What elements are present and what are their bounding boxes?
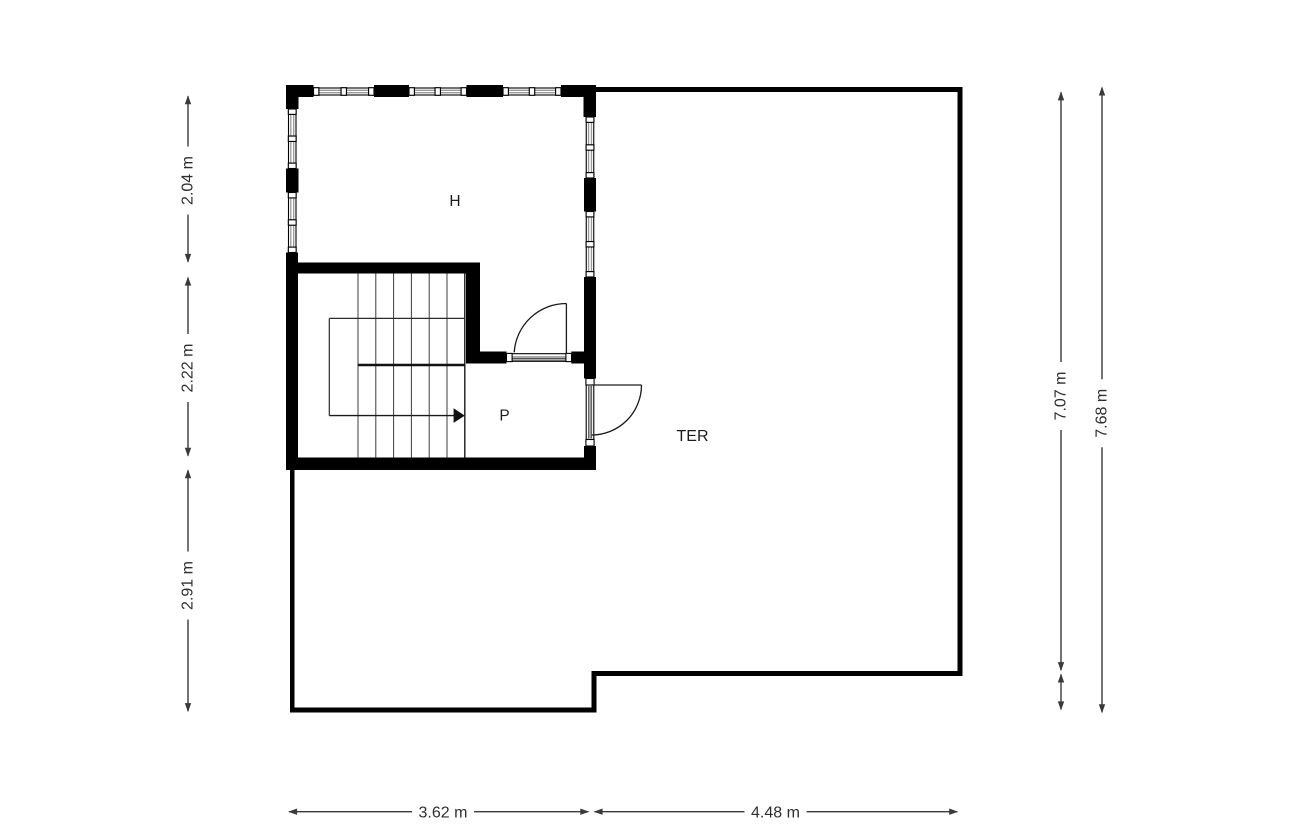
svg-text:2.91 m: 2.91 m [180, 561, 197, 610]
svg-text:7.68 m: 7.68 m [1094, 389, 1111, 438]
svg-text:2.22 m: 2.22 m [180, 344, 197, 393]
svg-text:P: P [499, 408, 509, 425]
svg-text:TER: TER [677, 428, 709, 445]
svg-text:7.07 m: 7.07 m [1053, 372, 1070, 421]
svg-text:4.48 m: 4.48 m [751, 804, 800, 821]
svg-text:3.62 m: 3.62 m [419, 804, 468, 821]
svg-text:H: H [449, 193, 460, 210]
svg-text:2.04 m: 2.04 m [180, 156, 197, 205]
